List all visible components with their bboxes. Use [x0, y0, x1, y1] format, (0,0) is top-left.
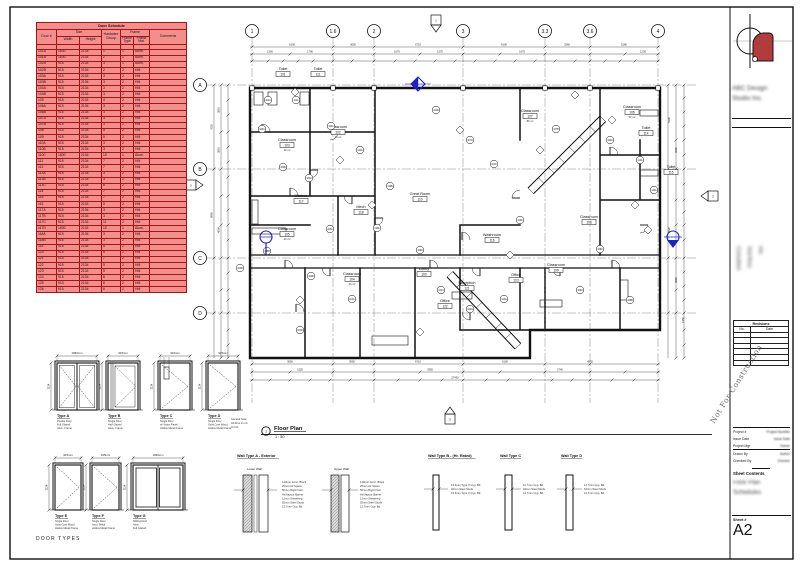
wall-note: 12.7mm Gyp. Bd. [523, 491, 544, 495]
wall-type-heading: Wall Type B - (Hr. Rated) [428, 454, 472, 458]
door-tag-number: 120A [417, 249, 423, 252]
room-name: Toilet [667, 165, 677, 169]
door-type-label: Type A [57, 414, 69, 418]
room-name: Washroom [483, 233, 501, 237]
dimension: 3810 [217, 147, 221, 153]
window-tag [644, 226, 652, 234]
dimension: 6710 [415, 43, 421, 47]
door-type-desc: Solid Core Wood [208, 423, 228, 427]
door-type-desc: Hollow Metal Frame [208, 426, 232, 430]
room-number: 105 [284, 232, 290, 236]
window-tag [456, 126, 464, 134]
room-number: 104 [349, 277, 355, 281]
firm-logo [733, 14, 792, 68]
stamp-text-redacted: Seal Area [746, 246, 752, 326]
wall-note: 25mm Air Space [360, 484, 380, 488]
room-number: 107 [527, 114, 533, 118]
room-number: 121 [464, 286, 470, 290]
door-tag-number: 109B [627, 300, 633, 302]
dimension: 1230 [640, 50, 646, 54]
dimension: 3050 [287, 360, 293, 364]
door-types-caption: DOOR TYPES [36, 536, 81, 542]
room-number: 110 [417, 197, 422, 201]
room-number: 116 [489, 238, 494, 242]
floor-plan-title: 1Floor Plan1 : 50General Note:All dims i… [231, 417, 712, 439]
wall-note: 12.7mm Gyp. Bd. [584, 491, 605, 495]
room-name: Toilet [279, 67, 289, 71]
dimension: 3050 [674, 147, 678, 153]
room-name: Office [511, 273, 521, 277]
door-tag-number: 103A [259, 128, 265, 131]
door-types-drawings: 1830mm2134Type ADouble DoorFull GlazedAl… [36, 351, 243, 542]
door-height-dim: 2134 [199, 383, 202, 389]
door-type-desc: Single Door [108, 419, 122, 423]
room-area: 57 m² [629, 115, 636, 119]
view-scale: 1 : 50 [275, 435, 285, 439]
grid-label: 3.6 [587, 29, 594, 35]
door-type-label: Type F [92, 514, 105, 518]
stamp-text-redacted: Info [757, 246, 763, 326]
col-comments: Comments [150, 30, 187, 45]
door-elevation [92, 465, 119, 510]
info-field: Issue Date Issue Date [733, 435, 790, 442]
room-number: 109 [553, 268, 559, 272]
wall-note: 64mm Steel Studs [584, 487, 607, 491]
room-number: 114 [643, 131, 648, 135]
wall-note: 12.7mm Gyp. Bd. [282, 505, 303, 509]
door-type-desc: Alum. [133, 523, 140, 527]
stamp-text-redacted: Consultant [735, 246, 741, 326]
door-tag-number: 105B [264, 251, 270, 253]
door-type-desc: Full Glazed [57, 423, 71, 427]
room-area: 80 m² [527, 119, 534, 123]
window-tag [631, 201, 639, 209]
dimension: 5330 [667, 117, 671, 123]
door-tag-number: 106A [607, 139, 613, 142]
door-type-desc: Single Door [160, 419, 174, 423]
door-elevation [108, 363, 138, 410]
door-schedule-table: Door ScheduleDoor # Size Hardware Group … [36, 22, 187, 293]
room-name: Lobby [419, 267, 429, 271]
door-elevation [55, 465, 81, 510]
grid-label: D [198, 311, 202, 317]
field-label: Drawn By [733, 450, 758, 458]
door-tag-number: 114A [637, 159, 643, 162]
field-value-redacted: Checker [758, 457, 790, 464]
wall-note: 92mm Steel Studs [282, 501, 305, 505]
dimension: 1350 [267, 50, 273, 54]
window-tag [416, 328, 424, 336]
divider [752, 468, 770, 469]
window-tag [506, 251, 514, 259]
field-label: Project Mgr [733, 442, 758, 450]
wall-note: 12.7mm Gyp. Bd. [523, 483, 544, 487]
plan-note: All dims in mm [231, 421, 248, 425]
room-number: 102 [335, 130, 341, 134]
info-field: Project Mgr Owner [733, 442, 790, 450]
room-number: 103 [284, 143, 290, 147]
wall-note: 15.9mm Type X Gyp. Bd. [451, 491, 481, 495]
door-width-dim: 915mm [101, 453, 111, 457]
door-type-label: Type G [133, 514, 146, 518]
room-area: 24 m² [349, 282, 356, 286]
room-number: 111 [316, 72, 321, 76]
divider [732, 515, 791, 516]
room-number: 108 [586, 220, 592, 224]
door-tag-number: 110C [491, 164, 497, 166]
door-elevation [208, 363, 238, 410]
wall-note: 92mm Steel Studs [360, 501, 383, 505]
room-name: Classroom [278, 138, 296, 142]
door-type-desc: Full Glazed [133, 526, 147, 530]
door-width-dim: 1830mm [72, 351, 84, 355]
door-type-desc: Alum. Frame [57, 426, 72, 430]
col-hw: Hardware Group [102, 30, 121, 45]
room-name: Office [440, 299, 450, 303]
wall-note: 12mm Sheathing [282, 496, 303, 500]
dimension: 6710 [415, 360, 421, 364]
door-type-label: Type B [108, 414, 121, 418]
wall-note: Air/Vapour Barrier [282, 492, 303, 496]
door-tag-number: 102A [328, 125, 334, 128]
door-tag-number: 122A [467, 308, 473, 311]
sheet-contents-redacted: Floor PlanSchedules [733, 479, 761, 498]
grid-label: 1 [251, 29, 254, 35]
room-name: Classroom [343, 272, 361, 276]
door-width-dim: 915mm [218, 351, 228, 355]
door-height-dim: 2134 [83, 484, 86, 490]
wall-note: 25mm Air Space [282, 484, 302, 488]
wall-type-heading: Wall Type C [500, 454, 521, 458]
door-type-desc: Half Glazed [108, 423, 122, 427]
view-title: Floor Plan [274, 426, 303, 432]
dimension: 1675 [519, 50, 525, 54]
dimension: 8990 [210, 212, 214, 218]
door-tag-number: 109A [577, 289, 583, 292]
door-tag-number: 121A [438, 289, 444, 292]
door-type-desc: w/ Vision Panel [160, 423, 178, 427]
room-number: 101 [280, 72, 286, 76]
dimension: 1375 [437, 50, 443, 54]
door-type-label: Type C [160, 414, 173, 418]
grid-label: 1.6 [330, 29, 337, 35]
wall-sub-label: Lower Wall [247, 467, 262, 471]
room-number: 100 [421, 272, 427, 276]
dimension: 4500 [217, 227, 221, 233]
door-type-desc: Double Door [57, 419, 72, 423]
divider [732, 127, 791, 128]
door-type-desc: Hollow Metal Frame [92, 526, 116, 530]
wall-types-drawings: Wall Type A - ExteriorLower Wall140mm Co… [234, 454, 607, 532]
dimension: 3360 [564, 43, 570, 47]
window-tag [336, 156, 344, 164]
door-tag-number: 110D [433, 110, 439, 112]
field-label: Project # [733, 428, 758, 435]
door-type-label: Type E [55, 514, 68, 518]
room-number: 118 [358, 210, 363, 214]
door-width-dim: 915mm [170, 351, 180, 355]
dimension: 3350 [427, 368, 433, 372]
divider [732, 118, 791, 119]
wall-note: 12.7mm Gyp. Bd. [360, 505, 381, 509]
door-tag-number: 110A [357, 149, 363, 152]
wall-note: 12mm Sheathing [360, 496, 381, 500]
door-height-dim: 2134 [46, 484, 49, 490]
grid-label: 3.3 [542, 29, 549, 35]
room-name: Kitchen [295, 194, 308, 198]
door-tag-number: 104B [308, 276, 314, 278]
field-value-redacted: Project Number [758, 428, 790, 435]
field-value-redacted: Author [758, 450, 790, 458]
project-info-fields: Project # Project Number Issue Date Issu… [733, 427, 790, 464]
grid-label: 2 [373, 29, 376, 35]
wall-type-heading: Wall Type D [561, 454, 582, 458]
grid-label: 4 [657, 29, 660, 35]
dimension: 3810 [217, 107, 221, 113]
dimension: 27430 [451, 376, 459, 380]
door-type-desc: Sliding Door [133, 519, 147, 523]
room-number: 106 [629, 110, 635, 114]
col-door: Door # [37, 30, 57, 45]
wall-note: 140mm Conc. Block [360, 480, 385, 484]
room-name: Classroom [278, 227, 296, 231]
plan-note: U.N.O. [231, 425, 239, 429]
door-tag-number: 107A [467, 139, 473, 142]
window-tag [296, 296, 304, 304]
door-tag-number: 101A [265, 99, 271, 102]
room-name: Mech [356, 205, 365, 209]
door-tag-number: 103B [280, 167, 286, 169]
field-value-redacted: Issue Date [758, 435, 790, 442]
wall-type-heading: Wall Type A - Exterior [237, 454, 276, 458]
door-tag-number: 104A [306, 177, 312, 180]
field-label: Issue Date [733, 435, 758, 442]
door-tag-number: 101B [237, 268, 243, 270]
dimension: 3660 [674, 277, 678, 283]
door-type-desc: Hollow Metal Frame [55, 526, 79, 530]
room-name: Classroom [547, 263, 565, 267]
dimension: 1350 [681, 317, 685, 323]
wall-note: 140mm Conc. Block [282, 480, 307, 484]
door-type-desc: Single Door [92, 519, 106, 523]
room-number: 115 [668, 170, 673, 174]
door-type-label: Type D [208, 414, 221, 418]
dimension: 6100 [501, 43, 507, 47]
door-tag-number: 104C [349, 299, 355, 301]
wall-note: 12.7mm Gyp. Bd. [584, 483, 605, 487]
field-value-redacted: Owner [758, 442, 790, 450]
window-tag [571, 91, 579, 99]
schedule-title: Door Schedule [37, 23, 187, 30]
info-field: Checked By Checker [733, 457, 790, 464]
dimension: 5180 [621, 43, 627, 47]
dimension: 6100 [502, 360, 508, 364]
dimension: 2740 [557, 368, 563, 372]
door-tag-number: 111A [293, 99, 298, 102]
dimension: 3050 [350, 43, 356, 47]
room-area: 42 m² [284, 148, 291, 152]
door-tag-number: 115A [651, 189, 657, 192]
door-width-dim: 1830mm [153, 453, 165, 457]
grid-label: 3 [462, 29, 465, 35]
grid-label: C [198, 256, 202, 262]
info-field: Drawn By Author [733, 450, 790, 458]
plan-note: General Note: [231, 417, 247, 421]
plan-annotations: Toilet101Toilet111Classroom10342 m²Class… [236, 67, 678, 349]
room-name: Classroom [580, 215, 598, 219]
door-height-dim: 2134 [99, 383, 102, 389]
room-name: Classroom [623, 105, 641, 109]
door-type-desc: Alum. Frame [108, 426, 123, 430]
door-type-desc: Hollow Metal Frame [160, 426, 184, 430]
door-height-dim: 2134 [48, 383, 51, 389]
wall-note: 15.9mm Type X Gyp. Bd. [451, 483, 481, 487]
firm-name-redacted: ABC DesignStudio Inc. [732, 84, 791, 104]
dimension: 6100 [289, 43, 295, 47]
door-tag-number: 116A [517, 219, 523, 222]
room-name: Reception [458, 281, 475, 285]
door-tag-number: 107B [553, 129, 559, 131]
door-width-dim: 915mm [118, 351, 128, 355]
field-label: Checked By [733, 457, 758, 464]
door-elevation [160, 363, 190, 410]
door-tag-number: 108A [597, 248, 603, 251]
room-name: Toilet [314, 67, 324, 71]
door-tag-number: 123A [501, 298, 507, 301]
view-number: 1 [265, 429, 267, 433]
wall-note: 50mm Rigid Insul. [360, 488, 382, 492]
door-type-desc: Insul. Metal [92, 523, 106, 527]
drawing-sheet: 11.6233.33.64ABCD 6100305067106100336051… [0, 0, 800, 567]
room-name: Classroom [521, 109, 539, 113]
sheet-number: A2 [733, 522, 753, 540]
door-type-desc: Solid Core Wood [55, 523, 75, 527]
room-number: 117 [298, 199, 303, 203]
wall-sub-label: Upper Wall [334, 467, 349, 471]
door-tag-number: 110B [387, 186, 393, 188]
room-name: Great Room [410, 192, 431, 196]
dimension: 3050 [349, 360, 355, 364]
dimension: 1700 [307, 50, 313, 54]
wall-note: 92mm Steel Studs [523, 487, 546, 491]
dimension: 1525 [297, 368, 303, 372]
wall-note: 92mm Steel Studs [451, 487, 474, 491]
door-height-dim: 2134 [151, 383, 154, 389]
door-width-dim: 915mm [63, 453, 73, 457]
door-type-desc: Single Door [208, 419, 222, 423]
door-tag-number: 105A [327, 228, 333, 231]
consultant-stamp-redacted: ConsultantSeal AreaInfo [735, 246, 763, 326]
dimension: 7620 [210, 124, 214, 130]
door-height-dim: 2134 [124, 484, 127, 490]
wall-note: 50mm Rigid Insul. [282, 488, 304, 492]
room-name: Toilet [642, 126, 652, 130]
dimension: 1675 [394, 50, 400, 54]
sheet-contents-label: Sheet Contents [733, 471, 765, 476]
grid-lines: 11.6233.33.64ABCD [194, 25, 697, 404]
dimension: 4570 [587, 360, 593, 364]
door-type-desc: Single Door [55, 519, 69, 523]
schedule-row: 126915213462HM [37, 287, 187, 293]
section-markers: 1223 [186, 15, 718, 424]
room-number: 123 [513, 278, 519, 282]
room-area: 24 m² [335, 135, 342, 139]
window-tag [608, 116, 616, 124]
room-area: 24 m² [284, 237, 291, 241]
room-number: 122 [442, 304, 448, 308]
info-field: Project # Project Number [733, 428, 790, 435]
wall-note: Air/Vapour Barrier [360, 492, 381, 496]
door-tag-number: 118A [374, 227, 380, 230]
window-tag [536, 146, 544, 154]
door-tag-number: 104D [297, 330, 303, 332]
